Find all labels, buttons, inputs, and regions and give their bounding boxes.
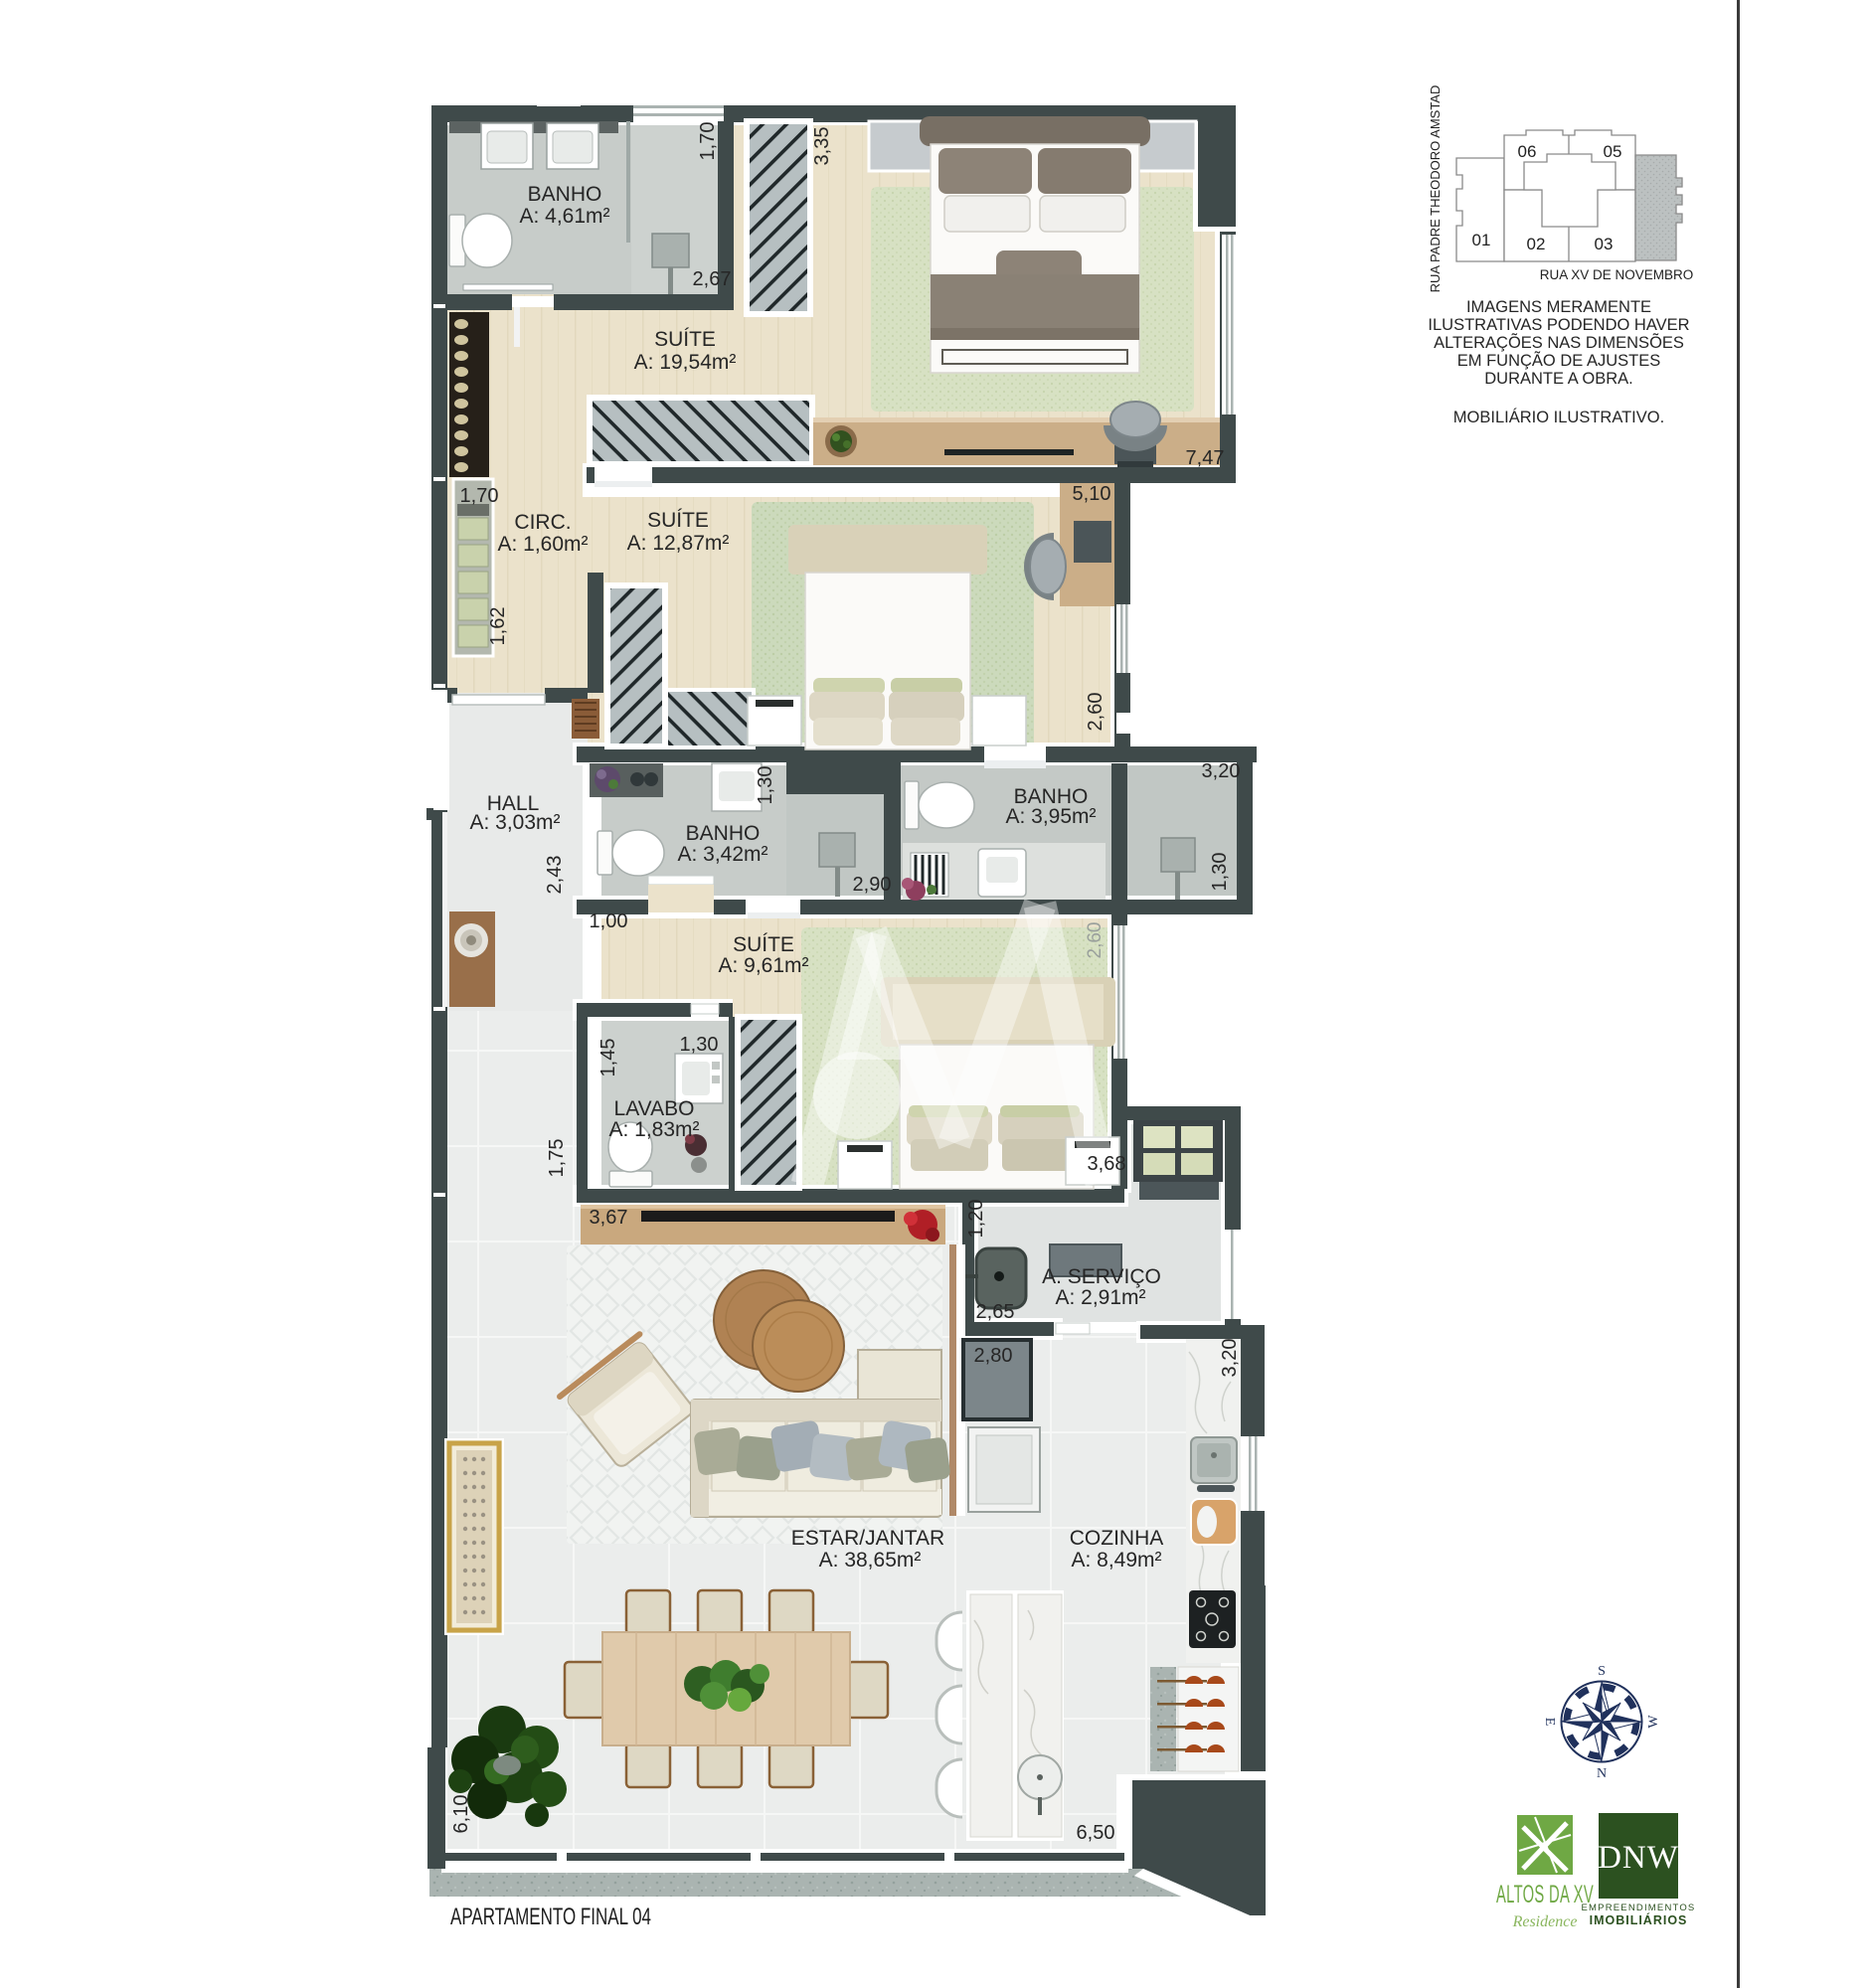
svg-text:S: S: [1598, 1664, 1606, 1679]
svg-text:MOBILIÁRIO ILUSTRATIVO.: MOBILIÁRIO ILUSTRATIVO.: [1453, 408, 1664, 426]
svg-text:1,75: 1,75: [546, 1139, 568, 1178]
svg-text:2,80: 2,80: [974, 1345, 1013, 1367]
svg-text:A: 8,49m²: A: 8,49m²: [1071, 1549, 1161, 1572]
svg-text:03: 03: [1595, 235, 1614, 253]
svg-text:A: 19,54m²: A: 19,54m²: [634, 351, 737, 374]
svg-text:CIRC.: CIRC.: [514, 511, 571, 534]
svg-text:A: 9,61m²: A: 9,61m²: [718, 954, 808, 977]
svg-text:1,30: 1,30: [755, 766, 776, 805]
svg-text:LAVABO: LAVABO: [614, 1097, 695, 1120]
svg-text:2,65: 2,65: [976, 1301, 1015, 1323]
svg-text:A: 38,65m²: A: 38,65m²: [819, 1549, 922, 1572]
svg-text:IMOBILIÁRIOS: IMOBILIÁRIOS: [1590, 1912, 1688, 1927]
svg-text:DURANTE A OBRA.: DURANTE A OBRA.: [1484, 370, 1632, 388]
svg-text:6,10: 6,10: [450, 1795, 472, 1834]
svg-text:W: W: [1646, 1715, 1661, 1729]
svg-text:1,70: 1,70: [460, 485, 499, 507]
svg-text:RUA XV DE NOVEMBRO: RUA XV DE NOVEMBRO: [1540, 267, 1694, 282]
svg-text:A: 1,60m²: A: 1,60m²: [497, 533, 588, 556]
svg-text:1,30: 1,30: [680, 1034, 719, 1056]
svg-text:1,45: 1,45: [597, 1039, 619, 1077]
svg-text:A: 12,87m²: A: 12,87m²: [627, 532, 730, 555]
svg-text:2,90: 2,90: [853, 874, 892, 896]
svg-text:1,30: 1,30: [1209, 853, 1231, 892]
svg-text:3,68: 3,68: [1088, 1153, 1126, 1175]
svg-text:RUA PADRE THEODORO AMSTAD: RUA PADRE THEODORO AMSTAD: [1428, 85, 1443, 293]
svg-text:02: 02: [1527, 235, 1546, 253]
svg-text:EMPREENDIMENTOS: EMPREENDIMENTOS: [1582, 1903, 1696, 1913]
svg-text:ILUSTRATIVAS PODENDO HAVER: ILUSTRATIVAS PODENDO HAVER: [1428, 316, 1689, 334]
svg-text:A: 4,61m²: A: 4,61m²: [519, 205, 609, 228]
svg-text:Residence: Residence: [1512, 1913, 1578, 1930]
svg-text:N: N: [1597, 1766, 1607, 1781]
svg-text:1,62: 1,62: [487, 607, 509, 646]
svg-text:ALTOS DA XV: ALTOS DA XV: [1496, 1881, 1594, 1908]
svg-text:SUÍTE: SUÍTE: [647, 509, 709, 532]
svg-text:SUÍTE: SUÍTE: [733, 933, 794, 956]
svg-text:05: 05: [1604, 142, 1622, 161]
svg-text:06: 06: [1518, 142, 1537, 161]
svg-text:2,60: 2,60: [1085, 693, 1106, 732]
svg-text:3,67: 3,67: [590, 1207, 628, 1229]
svg-text:ESTAR/JANTAR: ESTAR/JANTAR: [791, 1527, 944, 1550]
svg-text:COZINHA: COZINHA: [1070, 1527, 1164, 1550]
svg-text:A: 3,95m²: A: 3,95m²: [1005, 805, 1096, 828]
svg-text:5,10: 5,10: [1073, 483, 1111, 505]
svg-text:1,20: 1,20: [965, 1200, 987, 1239]
svg-text:ALTERAÇÕES NAS DIMENSÕES: ALTERAÇÕES NAS DIMENSÕES: [1434, 332, 1684, 352]
svg-text:A. SERVIÇO: A. SERVIÇO: [1042, 1265, 1161, 1288]
svg-text:1,70: 1,70: [697, 122, 719, 161]
svg-text:DNW: DNW: [1598, 1840, 1679, 1876]
svg-text:3,20: 3,20: [1202, 760, 1241, 782]
svg-text:APARTAMENTO FINAL 04: APARTAMENTO FINAL 04: [450, 1904, 651, 1930]
svg-text:A: 3,42m²: A: 3,42m²: [677, 843, 767, 866]
svg-text:A: 1,83m²: A: 1,83m²: [608, 1118, 699, 1141]
svg-text:6,50: 6,50: [1077, 1822, 1115, 1844]
svg-text:EM FUNÇÃO DE AJUSTES: EM FUNÇÃO DE AJUSTES: [1457, 350, 1660, 370]
svg-text:2,43: 2,43: [544, 856, 566, 895]
svg-text:7,47: 7,47: [1186, 447, 1225, 469]
svg-text:1,00: 1,00: [590, 911, 628, 932]
svg-text:3,20: 3,20: [1219, 1339, 1241, 1378]
svg-text:BANHO: BANHO: [528, 183, 602, 206]
svg-text:2,60: 2,60: [1085, 922, 1106, 959]
svg-text:01: 01: [1472, 231, 1491, 249]
svg-text:SUÍTE: SUÍTE: [654, 328, 716, 351]
svg-text:A: 2,91m²: A: 2,91m²: [1055, 1286, 1145, 1309]
svg-text:E: E: [1542, 1718, 1557, 1727]
svg-text:3,35: 3,35: [811, 127, 833, 166]
svg-text:BANHO: BANHO: [686, 822, 761, 845]
svg-text:A: 3,03m²: A: 3,03m²: [469, 811, 560, 834]
svg-text:IMAGENS MERAMENTE: IMAGENS MERAMENTE: [1466, 298, 1651, 316]
svg-text:2,67: 2,67: [693, 268, 732, 290]
